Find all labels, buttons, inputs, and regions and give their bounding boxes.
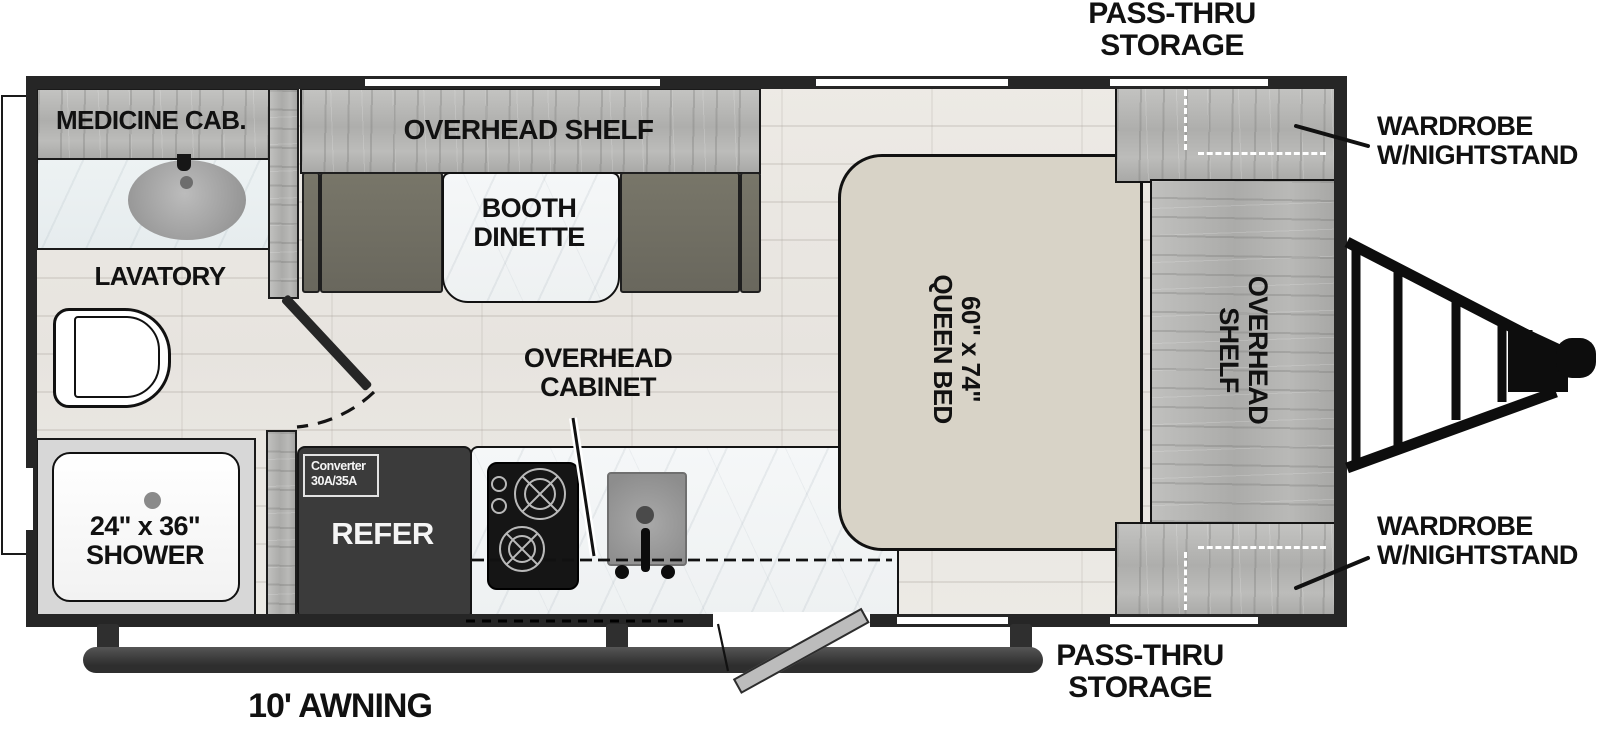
wardrobe-top-leader	[1296, 126, 1368, 146]
overhead-cabinet-leader	[573, 418, 594, 556]
entry-door-swing-line	[718, 624, 728, 671]
wardrobe-bottom-leader	[1296, 558, 1368, 588]
hitch-coupler	[1556, 338, 1596, 378]
stove-burners	[492, 469, 565, 571]
linework-overlay	[0, 0, 1600, 737]
hitch	[1347, 242, 1596, 468]
kitchen-faucet	[615, 506, 675, 579]
floorplan: MEDICINE CAB. LAVATORY 24" x 36" SHOWER …	[0, 0, 1600, 737]
bathroom-door-swing-arc	[297, 392, 374, 427]
